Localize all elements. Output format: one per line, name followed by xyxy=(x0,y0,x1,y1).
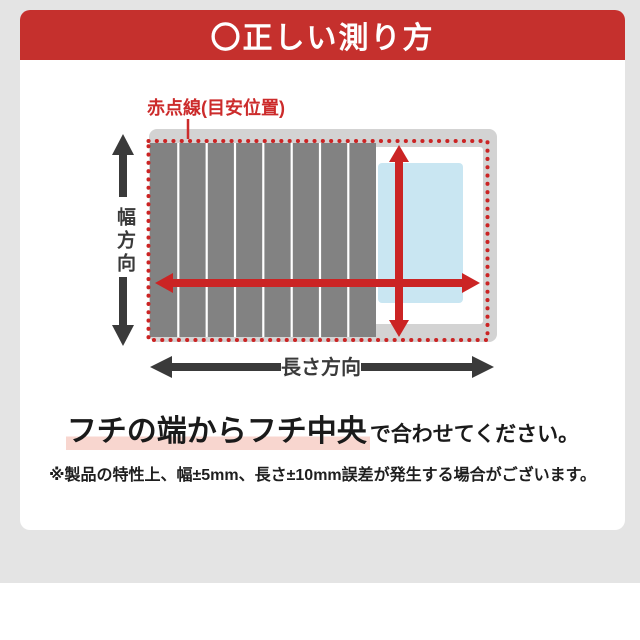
width-direction-label: 幅方向 xyxy=(108,202,138,280)
instruction-highlight: フチの端からフチ中央 xyxy=(66,415,370,450)
shutter-lid xyxy=(150,143,376,337)
product-tolerance-note: ※製品の特性上、幅±5mm、長さ±10mm誤差が発生する場合がございます。 xyxy=(20,464,625,488)
page-title: 〇正しい測り方 xyxy=(211,13,435,57)
length-direction-arrowhead-left xyxy=(150,356,172,378)
header-banner: 〇正しい測り方 xyxy=(20,10,625,60)
length-direction-arrowhead-right xyxy=(472,356,494,378)
length-direction-label: 長さ方向 xyxy=(281,355,361,379)
measurement-diagram: 赤点線(目安位置) 長さ方向 xyxy=(0,85,640,400)
page-background: 〇正しい測り方 xyxy=(0,0,640,640)
instruction-suffix: で合わせてください。 xyxy=(370,423,579,446)
width-direction-arrowhead-top xyxy=(112,134,134,155)
page-bottom-strip xyxy=(0,583,640,640)
measurement-instruction: フチの端からフチ中央で合わせてください。 xyxy=(20,410,625,459)
width-direction-arrowhead-bottom xyxy=(112,325,134,346)
annotation-label: 赤点線(目安位置) xyxy=(147,97,285,118)
